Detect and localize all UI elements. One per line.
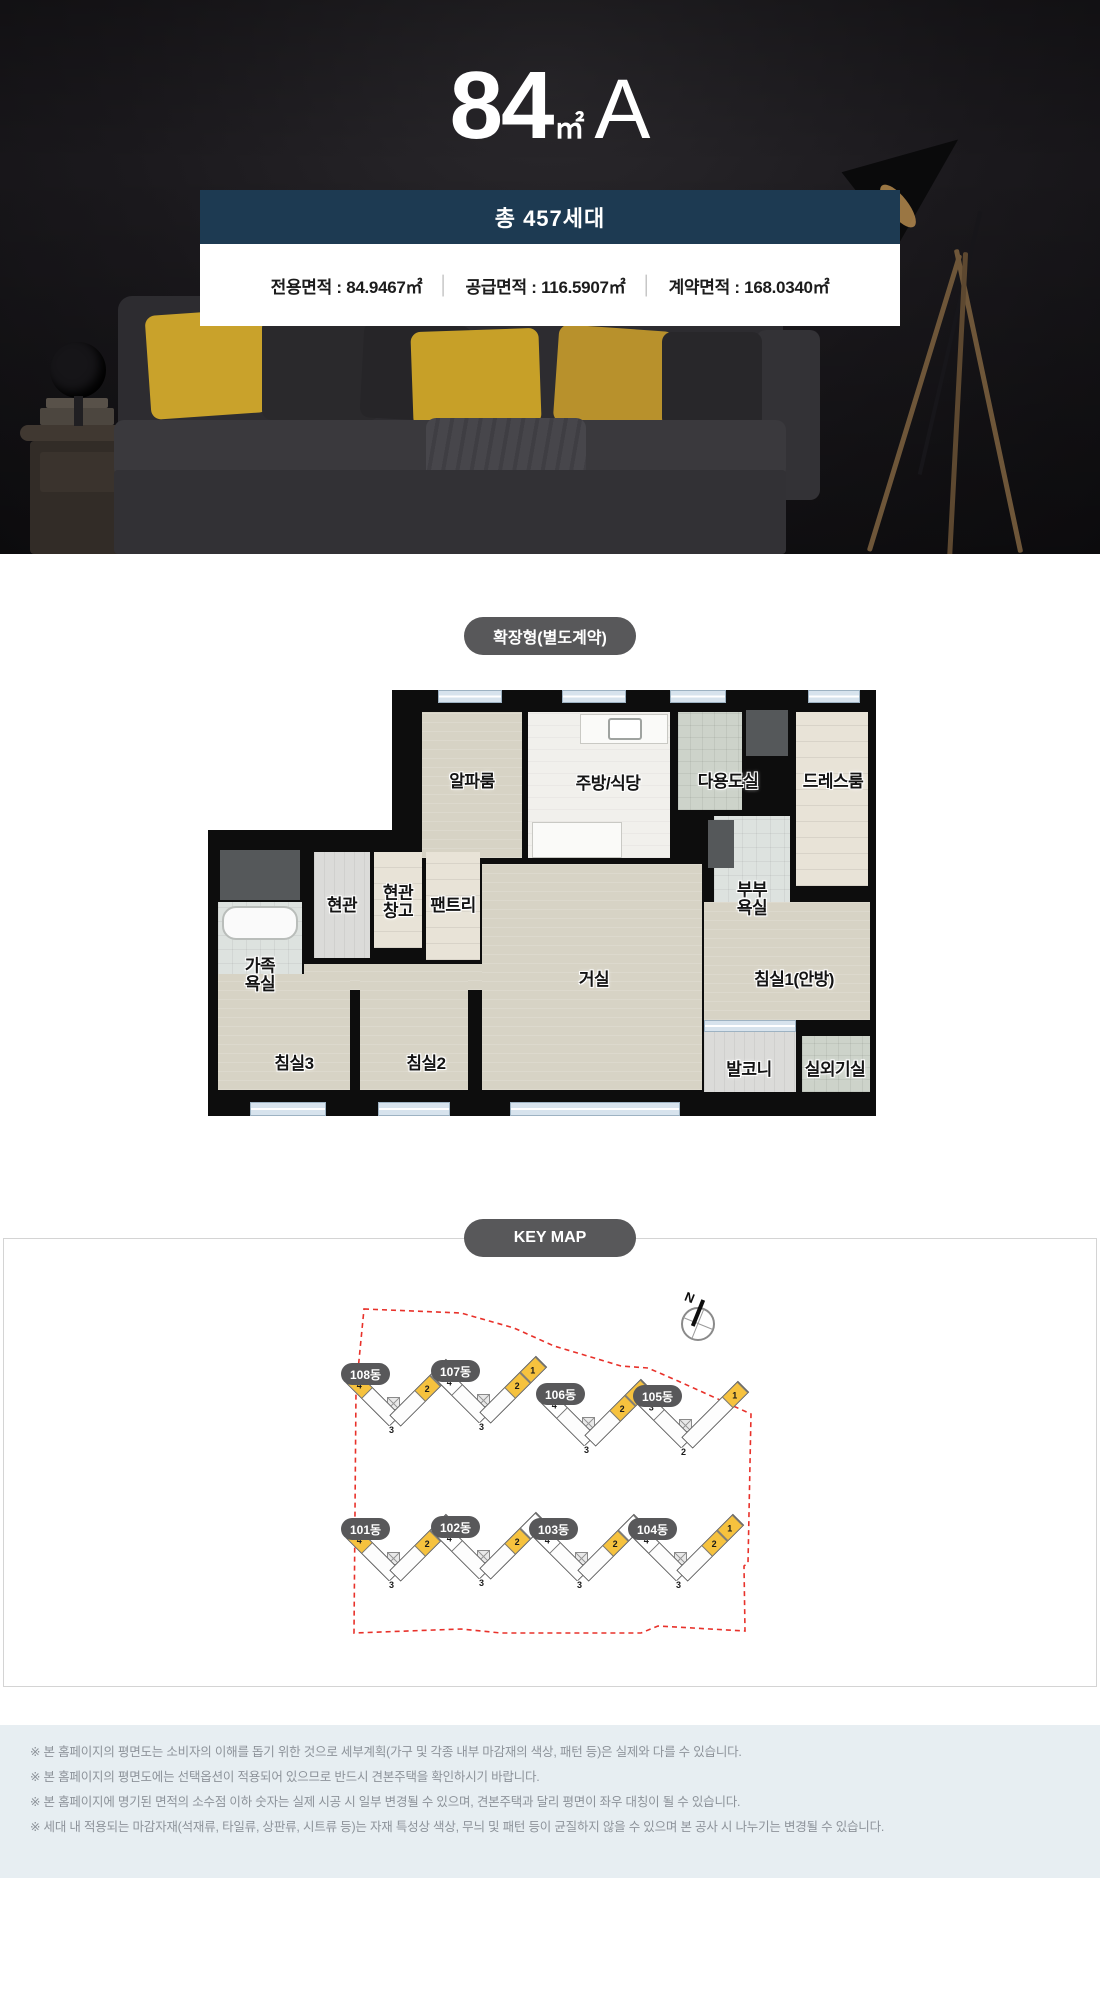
window xyxy=(670,690,726,703)
total-units-badge: 총 457세대 xyxy=(200,190,900,244)
plan-type: A xyxy=(594,62,650,156)
room-label-living: 거실 xyxy=(579,971,609,989)
room-label-balcony: 발코니 xyxy=(726,1061,771,1079)
window xyxy=(808,690,860,703)
unit-3: 3 xyxy=(389,1425,394,1435)
room-label-bed2: 침실2 xyxy=(406,1055,445,1073)
keymap-pill: KEY MAP xyxy=(464,1219,636,1257)
hero-section: 84㎡A 총 457세대 전용면적 : 84.9467㎡│공급면적 : 116.… xyxy=(0,0,1100,554)
window xyxy=(378,1102,450,1116)
building-badge: 102동 xyxy=(431,1516,480,1538)
unit-3: 3 xyxy=(676,1580,681,1590)
note-line-3: ※ 세대 내 적용되는 마감자재(석재류, 타일류, 상판류, 시트류 등)는 … xyxy=(30,1815,1100,1840)
unit-3: 3 xyxy=(479,1422,484,1432)
note-line-0: ※ 본 홈페이지의 평면도는 소비자의 이해를 돕기 위한 것으로 세부계획(가… xyxy=(30,1740,1100,1765)
room-label-bubu: 부부욕실 xyxy=(737,882,767,919)
dressroom-floor xyxy=(796,712,868,886)
window xyxy=(704,1020,796,1032)
area-item-0: 전용면적 : 84.9467㎡ xyxy=(271,273,423,298)
keymap-building-105동: 105동312 xyxy=(633,1385,765,1477)
plan-size-unit: ㎡ xyxy=(554,112,584,145)
room-label-hyeon: 현관 xyxy=(327,897,357,915)
room-label-bed3: 침실3 xyxy=(274,1055,313,1073)
window xyxy=(250,1102,326,1116)
unit-3: 3 xyxy=(584,1445,589,1455)
building-badge: 106동 xyxy=(536,1383,585,1405)
pillow-gray xyxy=(662,332,762,428)
kitchen-sink xyxy=(608,718,642,740)
room-label-fambath: 가족욕실 xyxy=(245,958,275,995)
building-badge: 105동 xyxy=(633,1385,682,1407)
room-label-alpha: 알파룸 xyxy=(449,773,494,791)
building-badge: 107동 xyxy=(431,1360,480,1382)
page: 84㎡A 총 457세대 전용면적 : 84.9467㎡│공급면적 : 116.… xyxy=(0,0,1100,1994)
room-label-changgo: 현관창고 xyxy=(383,885,413,922)
room-label-kitchen: 주방/식당 xyxy=(576,775,641,793)
plan-title: 84㎡A xyxy=(0,58,1100,154)
window xyxy=(510,1102,680,1116)
window xyxy=(438,690,502,703)
floorplan: 알파룸주방/식당다용도실드레스룸현관현관창고팬트리부부욕실가족욕실거실침실1(안… xyxy=(200,680,900,1130)
area-info-bar: 전용면적 : 84.9467㎡│공급면적 : 116.5907㎡│계약면적 : … xyxy=(200,244,900,326)
master-bath-dark-block xyxy=(708,820,734,868)
bedroom1-floor xyxy=(704,902,870,1020)
compass: N xyxy=(681,1307,715,1341)
expansion-type-pill: 확장형(별도계약) xyxy=(464,617,636,655)
notes-section: ※ 본 홈페이지의 평면도는 소비자의 이해를 돕기 위한 것으로 세부계획(가… xyxy=(0,1725,1100,1878)
area-separator: │ xyxy=(438,275,449,296)
bathtub xyxy=(222,906,298,940)
building-badge: 104동 xyxy=(628,1518,677,1540)
area-item-2: 계약면적 : 168.0340㎡ xyxy=(669,273,830,298)
unit-3: 3 xyxy=(479,1578,484,1588)
building-badge: 101동 xyxy=(341,1518,390,1540)
window xyxy=(562,690,626,703)
room-label-dress: 드레스룸 xyxy=(803,773,864,791)
room-label-bed1: 침실1(안방) xyxy=(754,971,834,989)
pillow-yellow xyxy=(410,328,541,428)
sofa-front xyxy=(114,470,786,554)
building-badge: 108동 xyxy=(341,1363,390,1385)
table-lamp xyxy=(50,342,106,398)
note-line-2: ※ 본 홈페이지에 명기된 면적의 소수점 이하 숫자는 실제 시공 시 일부 … xyxy=(30,1790,1100,1815)
room-label-pantry: 팬트리 xyxy=(430,897,475,915)
wardrobe-block xyxy=(220,850,300,900)
building-wing-right: 1 xyxy=(681,1381,749,1449)
building-badge: 103동 xyxy=(529,1518,578,1540)
building-wing-right: 21 xyxy=(676,1514,744,1582)
pillow-mustard xyxy=(553,324,676,430)
keymap-box: N 108동4213107동4213106동4213105동312101동421… xyxy=(3,1238,1097,1687)
room-label-dau: 다용도실 xyxy=(698,773,759,791)
plan-size: 84 xyxy=(450,52,553,159)
utility-dark-block xyxy=(746,710,788,756)
room-label-outdoor: 실외기실 xyxy=(805,1061,866,1079)
unit-3: 3 xyxy=(577,1580,582,1590)
keymap-building-104동: 104동4213 xyxy=(628,1518,760,1610)
table-lamp-stem xyxy=(74,396,83,426)
utility-floor xyxy=(678,712,742,810)
note-line-1: ※ 본 홈페이지의 평면도에는 선택옵션이 적용되어 있으므로 반드시 견본주택… xyxy=(30,1765,1100,1790)
unit-3: 3 xyxy=(389,1580,394,1590)
unit-2: 2 xyxy=(681,1447,686,1457)
area-separator: │ xyxy=(641,275,652,296)
area-item-1: 공급면적 : 116.5907㎡ xyxy=(466,273,626,298)
kitchen-island xyxy=(532,822,622,858)
